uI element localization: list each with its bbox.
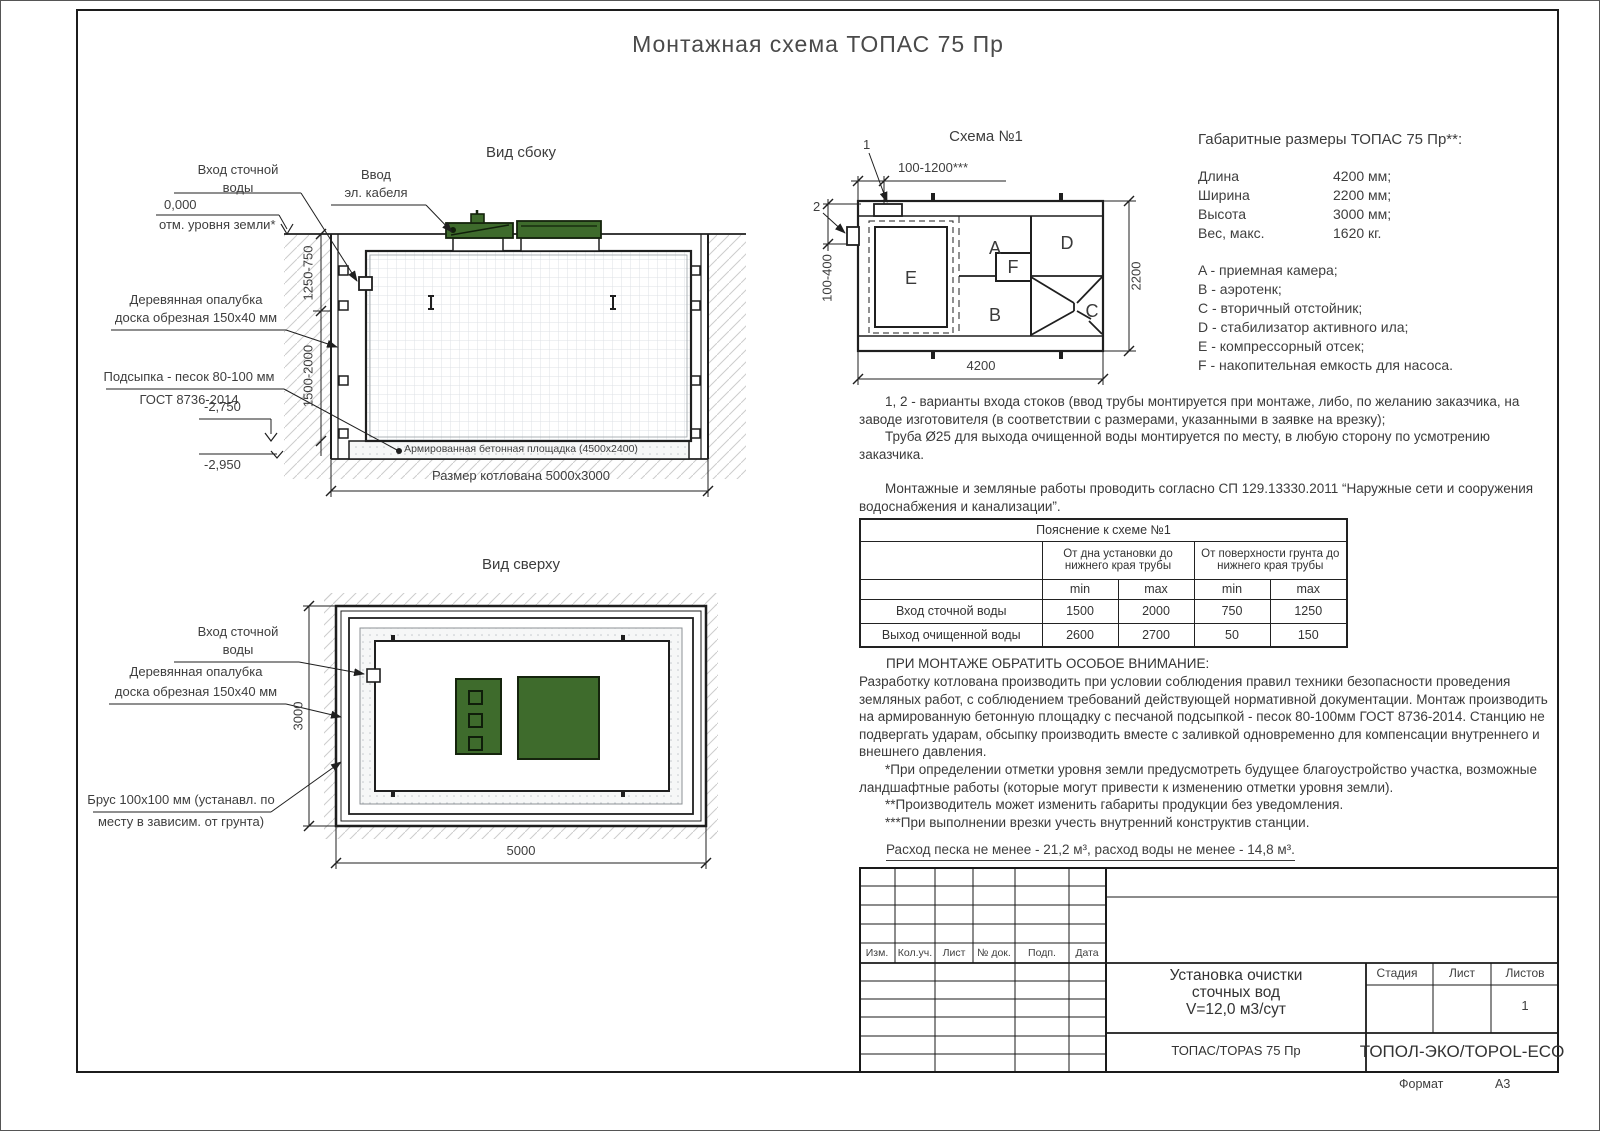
- sv-sand-label: Подсыпка - песок 80-100 мм: [104, 370, 275, 385]
- tv-brus-label: Брус 100х100 мм (устанавл. по: [87, 793, 274, 808]
- dim-row-name: Ширина: [1198, 187, 1250, 203]
- explanation-table: Пояснение к схеме №1 От дна установки до…: [859, 518, 1348, 648]
- tv-dim-length: 5000: [507, 844, 536, 859]
- table-corner-cell: [860, 541, 1042, 579]
- rev-header: Изм.: [866, 947, 889, 959]
- sheets-label: Листов: [1506, 967, 1545, 981]
- page-title: Монтажная схема ТОПАС 75 Пр: [632, 31, 1004, 57]
- row-name: Выход очищенной воды: [860, 623, 1042, 647]
- format-label: Формат: [1399, 1077, 1443, 1091]
- tv-dim-width: 3000: [292, 702, 307, 731]
- table-group-header: От поверхности грунта до нижнего края тр…: [1194, 541, 1347, 579]
- stage-label: Стадия: [1377, 967, 1418, 981]
- notes-block: 1, 2 - варианты входа стоков (ввод трубы…: [859, 393, 1551, 515]
- sheet-label: Лист: [1449, 967, 1475, 981]
- overall-title: Габаритные размеры ТОПАС 75 Пр**:: [1198, 131, 1462, 148]
- tv-formwork-label: Деревянная опалубка: [130, 665, 263, 680]
- schema-dim-left: 100-400: [821, 254, 836, 302]
- sv-elev-pad: -2,750: [204, 400, 241, 415]
- lid-covers: [446, 210, 601, 238]
- sv-cable-label-2: эл. кабеля: [344, 186, 407, 201]
- room-D: D: [1061, 233, 1074, 253]
- side-view-title: Вид сбоку: [486, 144, 556, 161]
- inlet-port: [359, 277, 372, 290]
- sv-zero-mark: 0,000: [164, 198, 197, 213]
- rev-header: Кол.уч.: [898, 947, 932, 959]
- schema-drawing: E A F B D C: [811, 121, 1181, 401]
- room-E: E: [905, 268, 917, 288]
- format-value: А3: [1495, 1077, 1510, 1091]
- sv-elev-bottom: -2,950: [204, 458, 241, 473]
- table-group-header: От дна установки до нижнего края трубы: [1042, 541, 1194, 579]
- schema-dim-right: 2200: [1130, 262, 1145, 291]
- rev-header: Лист: [943, 947, 966, 959]
- inlet-port-plan: [367, 669, 380, 682]
- sv-inlet-label: Вход сточной: [198, 163, 279, 178]
- legend-item: E - компрессорный отсек;: [1198, 338, 1364, 354]
- dim-row-value: 1620 кг.: [1333, 225, 1381, 241]
- sv-inlet-label-2: воды: [223, 181, 254, 196]
- attention-title: ПРИ МОНТАЖЕ ОБРАТИТЬ ОСОБОЕ ВНИМАНИЕ:: [886, 656, 1209, 672]
- note-paragraph: Труба Ø25 для выхода очищенной воды монт…: [859, 428, 1551, 463]
- schema-callout-2: 2: [813, 200, 820, 215]
- sheets-value: 1: [1521, 999, 1528, 1014]
- attention-body-wrap: Разработку котлована производить при усл…: [859, 673, 1553, 761]
- room-B: B: [989, 305, 1001, 325]
- col-min: min: [1194, 579, 1270, 599]
- doc-title-line: V=12,0 м3/сут: [1186, 1001, 1286, 1019]
- legend-item: B - аэротенк;: [1198, 281, 1282, 297]
- rev-header: Дата: [1075, 947, 1098, 959]
- table-row: Выход очищенной воды 2600 2700 50 150: [860, 623, 1347, 647]
- schema-callout-1: 1: [863, 138, 870, 153]
- sv-cable-label: Ввод: [361, 168, 391, 183]
- footnotes-block: *При определении отметки уровня земли пр…: [859, 761, 1565, 831]
- sv-dim-lower: 1500-2000: [302, 345, 317, 407]
- footnote: ***При выполнении врезки учесть внутренн…: [859, 814, 1565, 832]
- drawing-sheet: Монтажная схема ТОПАС 75 Пр: [0, 0, 1600, 1131]
- tv-formwork-label-2: доска обрезная 150х40 мм: [115, 685, 277, 700]
- tv-inlet-label: Вход сточной: [198, 625, 279, 640]
- inlet-variant-1: [874, 204, 902, 216]
- inlet-variant-2: [847, 227, 859, 245]
- col-max: max: [1270, 579, 1347, 599]
- sv-ground-note: отм. уровня земли*: [159, 218, 276, 233]
- company-name: ТОПОЛ-ЭКО/TOPOL-ECO: [1360, 1042, 1565, 1062]
- room-F: F: [1008, 257, 1019, 277]
- lid-covers-plan: [456, 677, 599, 759]
- dim-row-value: 3000 мм;: [1333, 206, 1391, 222]
- sv-formwork-label: Деревянная опалубка: [130, 293, 263, 308]
- consumption-note: Расход песка не менее - 21,2 м³, расход …: [886, 842, 1295, 861]
- doc-title-line: Установка очистки: [1170, 967, 1303, 985]
- tank-body: [366, 251, 691, 441]
- table-row: Вход сточной воды 1500 2000 750 1250: [860, 599, 1347, 623]
- tv-inlet-label-2: воды: [223, 643, 254, 658]
- dim-row-name: Вес, макс.: [1198, 225, 1265, 241]
- schema-dim-bottom: 4200: [967, 359, 996, 374]
- note-paragraph: Монтажные и земляные работы проводить со…: [859, 480, 1551, 515]
- note-paragraph: 1, 2 - варианты входа стоков (ввод трубы…: [859, 393, 1551, 428]
- dim-row-name: Высота: [1198, 206, 1246, 222]
- room-A: A: [989, 238, 1001, 258]
- legend-item: F - накопительная емкость для насоса.: [1198, 357, 1453, 373]
- top-view-drawing: [81, 556, 781, 886]
- tv-brus-label-2: месту в зависим. от грунта): [98, 815, 264, 830]
- dim-row-name: Длина: [1198, 168, 1239, 184]
- top-view-title: Вид сверху: [482, 556, 560, 573]
- attention-body: Разработку котлована производить при усл…: [859, 673, 1553, 761]
- sv-pit-dim: Размер котлована 5000х3000: [432, 469, 610, 484]
- rev-header: Подп.: [1028, 947, 1056, 959]
- col-min: min: [1042, 579, 1118, 599]
- room-C: C: [1086, 301, 1099, 321]
- model-name: ТОПАС/TOPAS 75 Пр: [1171, 1044, 1300, 1059]
- dim-row-value: 2200 мм;: [1333, 187, 1391, 203]
- footnote: *При определении отметки уровня земли пр…: [859, 761, 1565, 796]
- schema-dim-top: 100-1200***: [898, 161, 968, 176]
- col-max: max: [1118, 579, 1194, 599]
- dim-row-value: 4200 мм;: [1333, 168, 1391, 184]
- legend-item: D - стабилизатор активного ила;: [1198, 319, 1408, 335]
- legend-item: A - приемная камера;: [1198, 262, 1338, 278]
- sv-formwork-label-2: доска обрезная 150х40 мм: [115, 311, 277, 326]
- schema-title: Схема №1: [949, 128, 1023, 145]
- legend-item: C - вторичный отстойник;: [1198, 300, 1362, 316]
- row-name: Вход сточной воды: [860, 599, 1042, 623]
- sv-dim-upper: 1250-750: [302, 246, 317, 301]
- footnote: **Производитель может изменить габариты …: [859, 796, 1565, 814]
- doc-title-line: сточных вод: [1192, 984, 1280, 1002]
- rev-header: № док.: [977, 947, 1011, 959]
- sv-pad-label: Армированная бетонная площадка (4500х240…: [404, 443, 638, 455]
- table-title: Пояснение к схеме №1: [860, 519, 1347, 541]
